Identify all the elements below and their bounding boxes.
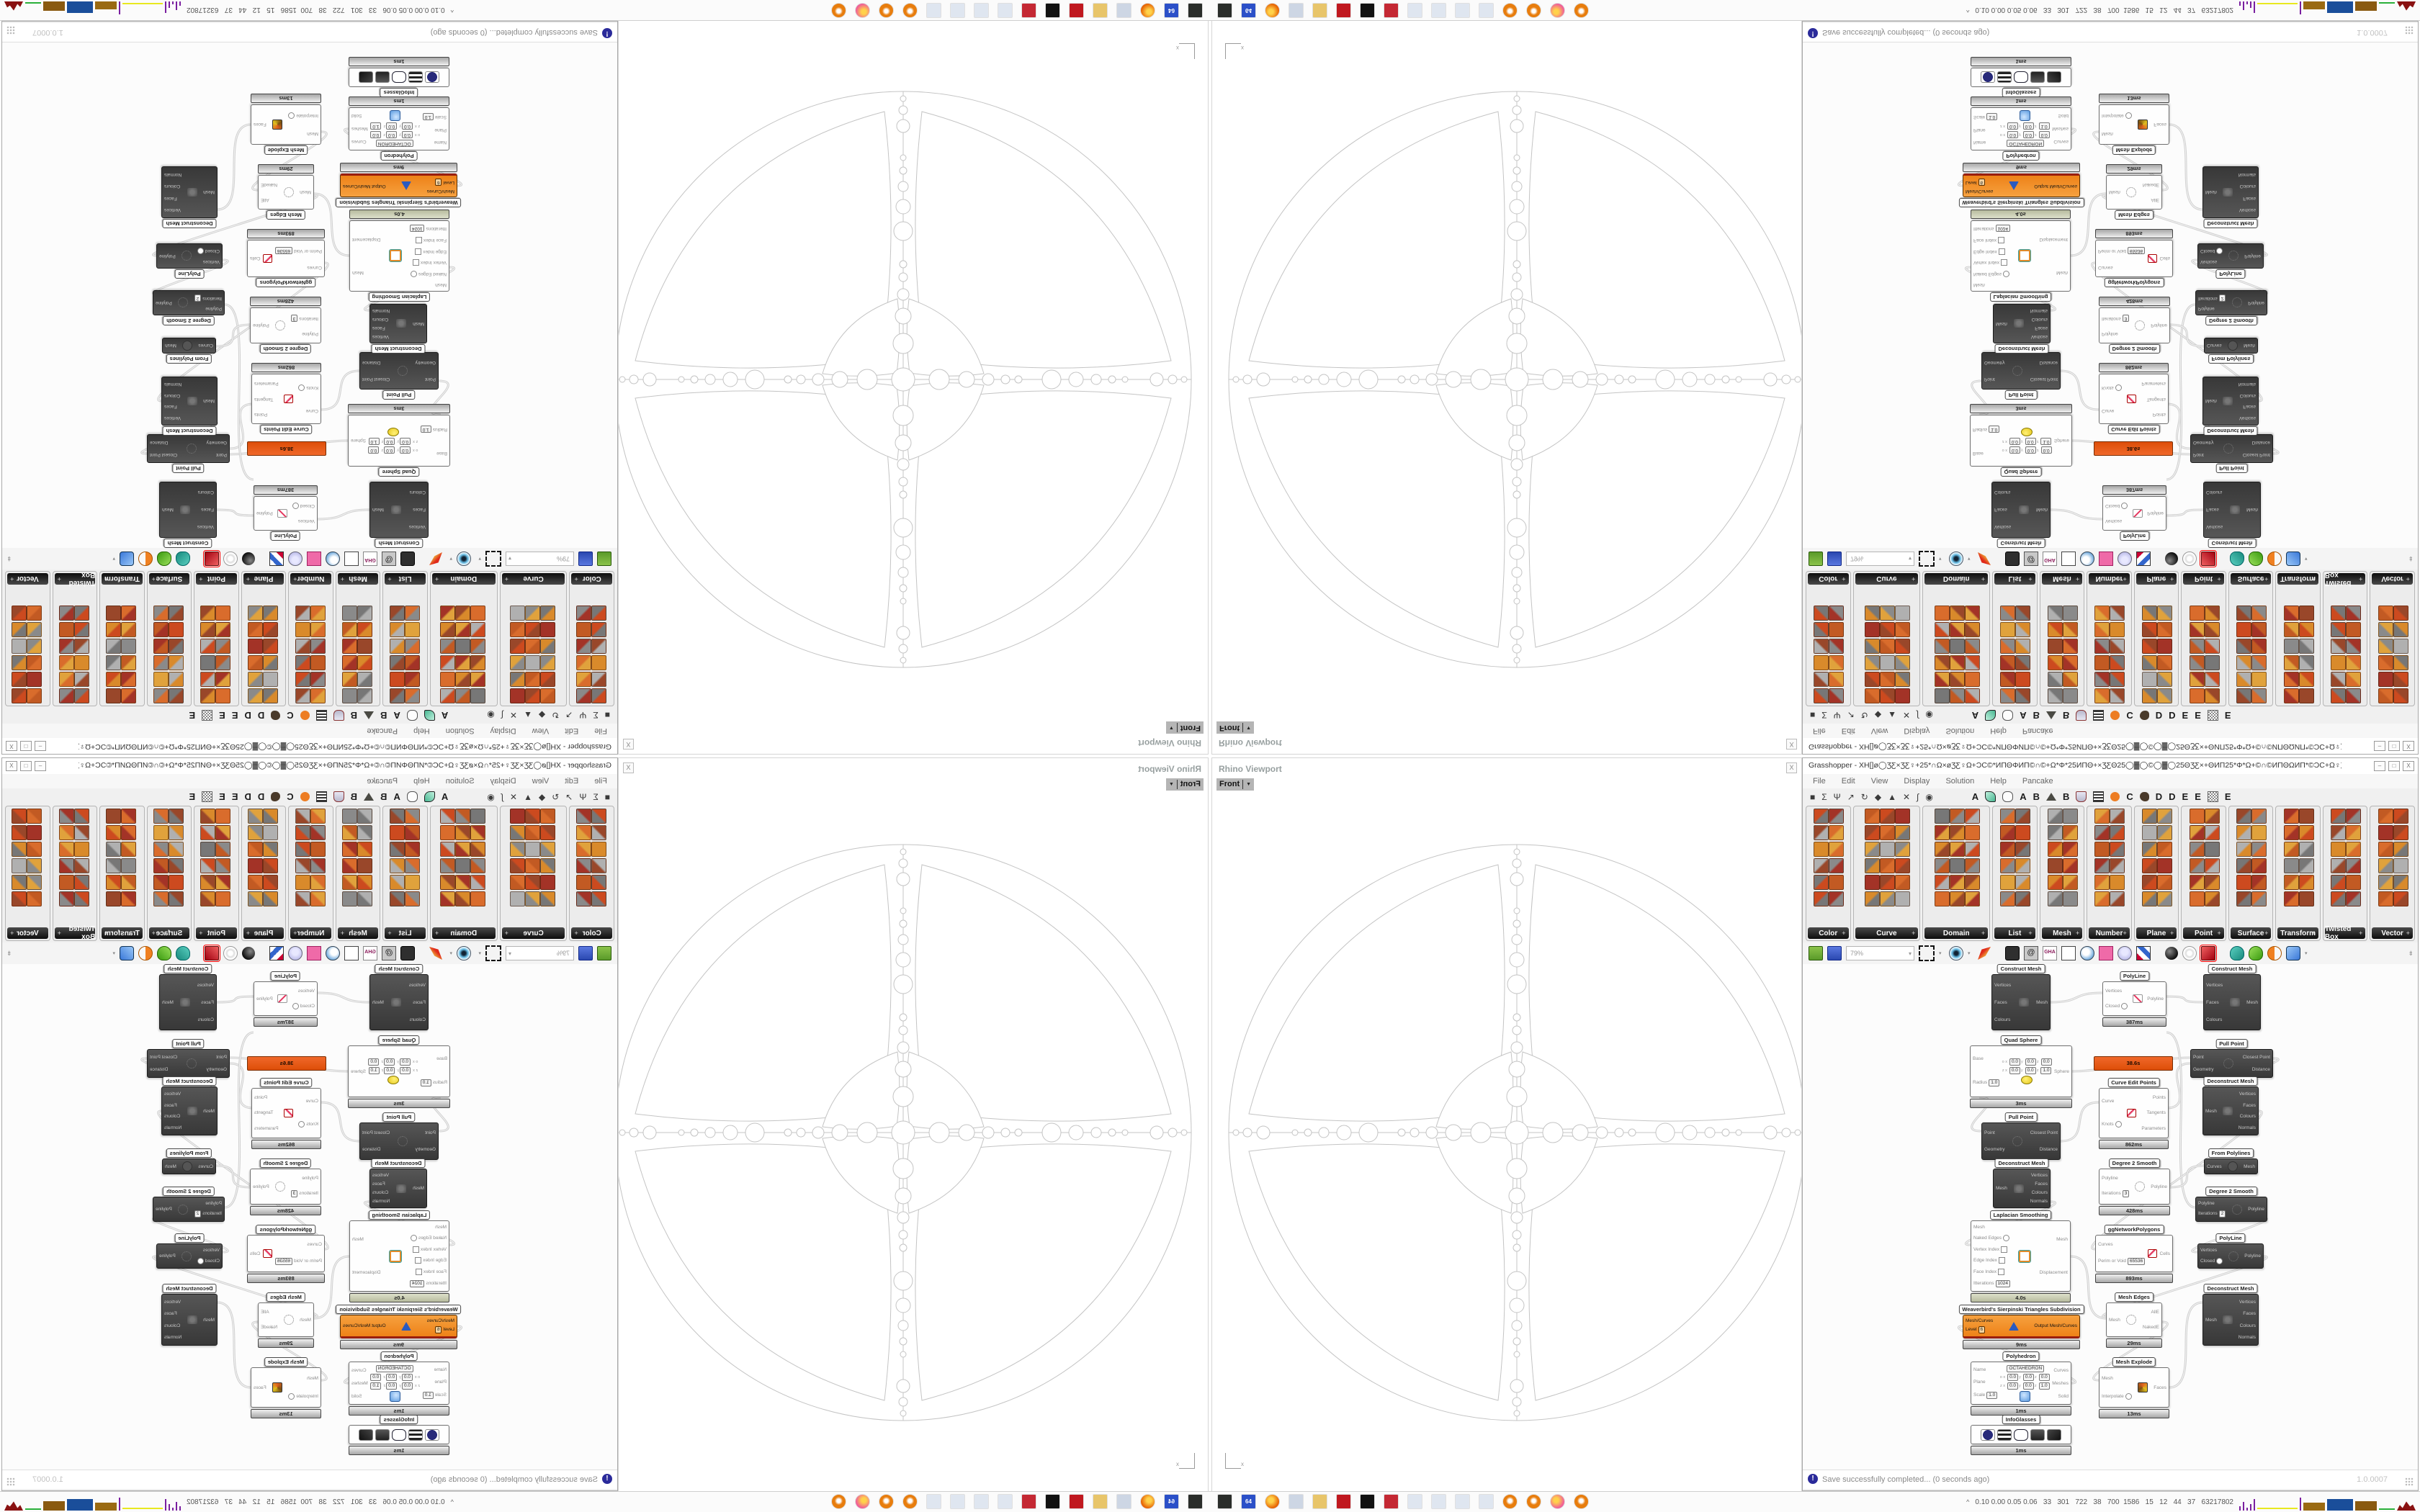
component-icon[interactable] (455, 858, 470, 873)
component-icon[interactable] (510, 622, 525, 637)
component-icon[interactable] (2048, 842, 2063, 857)
preview-eye-icon[interactable] (1949, 946, 1963, 960)
display-tab[interactable]: ◉ (1925, 792, 1932, 802)
component-icon[interactable] (121, 639, 136, 654)
component-icon[interactable] (2284, 655, 2299, 670)
component-icon[interactable] (263, 842, 278, 857)
component-icon[interactable] (357, 825, 372, 840)
palette-expand-plus[interactable]: + (387, 930, 391, 937)
component-icon[interactable] (2393, 639, 2408, 654)
component-icon[interactable] (153, 875, 169, 890)
component-icon[interactable] (295, 809, 310, 824)
display-tab[interactable]: ◉ (1925, 711, 1932, 721)
torus-white-icon[interactable] (2182, 552, 2197, 566)
port-level[interactable]: Level6 (1966, 1326, 1985, 1333)
brain-icon[interactable] (2002, 791, 2013, 802)
name-chip[interactable]: OCTAHEDRON (376, 1365, 413, 1372)
component-icon[interactable] (2378, 809, 2393, 824)
port-name[interactable]: Name (1973, 1367, 1986, 1372)
component-icon[interactable] (2205, 688, 2220, 703)
palette-expand-plus[interactable]: + (505, 575, 508, 582)
port-colours[interactable]: Colours (1994, 490, 2010, 495)
component-icon[interactable] (59, 842, 74, 857)
taskbar-floppy-64-icon[interactable]: 64 (1164, 1494, 1179, 1509)
component-icon[interactable] (390, 655, 405, 670)
palette-expand-plus[interactable]: + (104, 930, 108, 937)
quad-sphere[interactable]: BaseRadius1.0o x0.0y0.0z0.0z x0.0y0.0z1.… (1970, 415, 2072, 467)
port-closest-point[interactable]: Closest Point (150, 452, 177, 457)
plane-value-chip[interactable]: 0.0 (384, 438, 395, 445)
infoglasses-icon-1[interactable] (425, 1429, 439, 1441)
plugin-tab-B[interactable]: B (351, 710, 357, 721)
component-icon[interactable] (2094, 688, 2110, 703)
taskbar-paint-2-icon[interactable] (1431, 1494, 1446, 1509)
port-solid[interactable]: Solid (351, 1394, 362, 1399)
component-icon[interactable] (169, 875, 184, 890)
palette-expand-plus[interactable]: + (2028, 575, 2032, 582)
component-icon[interactable] (2157, 639, 2172, 654)
vector-tab[interactable]: ↗ (565, 792, 573, 802)
taskbar-calculator-icon[interactable] (1116, 1494, 1131, 1509)
port-polyline[interactable]: Polyline (256, 996, 273, 1002)
infoglasses-icon-4[interactable] (2030, 1429, 2045, 1441)
port-curves[interactable]: Curves (2053, 140, 2069, 145)
component-icon[interactable] (263, 639, 278, 654)
component-icon[interactable] (121, 825, 136, 840)
component-icon[interactable] (1814, 639, 1829, 654)
plane-value-chip[interactable]: 0.0 (2009, 1067, 2020, 1074)
component-icon[interactable] (263, 891, 278, 906)
ggnetworkpolygons[interactable]: CurvesPerim or Void65536Cells (247, 240, 325, 277)
component-icon[interactable] (295, 688, 310, 703)
value-chip[interactable]: 1024 (410, 225, 424, 232)
component-icon[interactable] (2063, 655, 2078, 670)
port-itterations[interactable]: Itterations1024 (1973, 225, 2010, 232)
port-normals[interactable]: Normals (372, 308, 390, 313)
polyline-1[interactable]: VerticesClosedPolyline (254, 981, 318, 1016)
palette-expand-plus[interactable]: + (387, 575, 391, 582)
component-icon[interactable] (2299, 655, 2314, 670)
gh-canvas[interactable]: Construct MeshVerticesFacesColoursMeshQu… (1803, 964, 2418, 1470)
port-faces[interactable]: Faces (164, 196, 177, 201)
plugin-tab-C[interactable]: C (2126, 710, 2133, 721)
component-icon[interactable] (74, 622, 89, 637)
component-icon[interactable] (470, 606, 485, 621)
port-mesh[interactable]: Mesh (203, 190, 215, 195)
plane-value-chip[interactable]: 0.0 (2039, 1374, 2050, 1381)
menu-item-view[interactable]: View (532, 777, 550, 786)
component-icon[interactable] (2236, 622, 2251, 637)
jug-green-icon[interactable] (2249, 552, 2263, 566)
port-mesh[interactable]: Mesh (2102, 1376, 2113, 1381)
palette-expand-plus[interactable]: + (10, 930, 14, 937)
component-icon[interactable] (74, 891, 89, 906)
component-icon[interactable] (357, 622, 372, 637)
component-icon[interactable] (169, 825, 184, 840)
export-doc-icon[interactable] (2061, 946, 2076, 960)
plugin-tab-E[interactable]: E (232, 710, 238, 721)
taskbar-obs-app-icon[interactable] (1217, 3, 1232, 18)
component-icon[interactable] (1895, 639, 1910, 654)
taskbar-blender-3-icon[interactable] (1574, 1494, 1589, 1509)
component-icon[interactable] (59, 622, 74, 637)
palette-expand-plus[interactable]: + (2264, 930, 2268, 937)
component-icon[interactable] (591, 655, 606, 670)
palette-expand-plus[interactable]: + (58, 930, 61, 937)
port-perim-or-void[interactable]: Perim or Void65536 (2098, 1258, 2145, 1265)
gem-blue-icon[interactable] (120, 946, 134, 960)
params-tab[interactable]: ■ (1810, 711, 1815, 721)
quad-sphere[interactable]: BaseRadius1.0o x0.0y0.0z0.0z x0.0y0.0z1.… (348, 415, 450, 467)
component-icon[interactable] (440, 842, 455, 857)
mountain-icon[interactable] (364, 711, 374, 719)
component-icon[interactable] (2094, 875, 2110, 890)
value-chip[interactable]: 1.0 (421, 426, 431, 433)
component-icon[interactable] (2251, 809, 2267, 824)
port-vertices[interactable]: Vertices (203, 1248, 220, 1253)
degree-2-smooth-1[interactable]: PolylineIterations3Polyline (250, 1169, 321, 1205)
chevron-down-icon[interactable]: ▾ (109, 950, 115, 956)
menu-item-view[interactable]: View (1871, 726, 1888, 735)
component-icon[interactable] (2063, 875, 2078, 890)
component-icon[interactable] (106, 606, 121, 621)
port-faces[interactable]: Faces (413, 1000, 426, 1005)
component-icon[interactable] (263, 655, 278, 670)
port-mesh[interactable]: Mesh (1973, 1225, 1985, 1230)
component-icon[interactable] (1865, 858, 1880, 873)
component-icon[interactable] (59, 688, 74, 703)
construct-mesh-2[interactable]: VerticesFacesColoursMesh (2203, 482, 2261, 538)
port-curves[interactable]: Curves (2207, 343, 2222, 348)
component-icon[interactable] (1814, 622, 1829, 637)
component-icon[interactable] (2331, 858, 2346, 873)
palette-expand-plus[interactable]: + (505, 930, 508, 937)
component-icon[interactable] (591, 858, 606, 873)
infoglasses-icon-5[interactable] (2047, 1429, 2061, 1441)
component-icon[interactable] (2063, 639, 2078, 654)
taskbar-paint-4-icon[interactable] (1479, 1494, 1494, 1509)
port-colours[interactable]: Colours (410, 490, 426, 495)
port-vertices[interactable]: Vertices (298, 989, 315, 994)
component-icon[interactable] (2190, 875, 2205, 890)
port-normals[interactable]: Normals (2238, 382, 2256, 387)
sphere-dark-icon[interactable] (2165, 947, 2178, 960)
port-polyline[interactable]: Polyline (2151, 323, 2167, 328)
component-icon[interactable] (1965, 809, 1980, 824)
component-icon[interactable] (2331, 606, 2346, 621)
component-icon[interactable] (342, 672, 357, 687)
port-output-mesh-curves[interactable]: Output Mesh/Curves (2034, 1323, 2077, 1328)
port-vertices[interactable]: Vertices (372, 334, 389, 339)
maths-tab[interactable]: Σ (1821, 711, 1827, 721)
toolbar-overflow-icon[interactable]: ⇟ (6, 555, 12, 563)
component-icon[interactable] (2094, 891, 2110, 906)
pull-point-1[interactable]: PointGeometryClosest PointDistance (359, 1122, 439, 1160)
polyline-2[interactable]: VerticesClosedPolyline (156, 243, 223, 269)
close-button[interactable]: X (6, 761, 17, 771)
port-vertices[interactable]: Vertices (1994, 525, 2011, 530)
port-iterations[interactable]: Iterations3 (291, 1190, 318, 1197)
value-chip[interactable]: 65536 (275, 247, 292, 254)
toggle-box[interactable] (1998, 1269, 2004, 1275)
palette-expand-plus[interactable]: + (435, 575, 439, 582)
port-naked-edges[interactable]: Naked Edges (1973, 271, 2009, 277)
component-icon[interactable] (310, 842, 326, 857)
mesh-edges-1[interactable]: MeshAllENakedE (2106, 175, 2162, 210)
infoglasses[interactable] (1971, 68, 2071, 87)
component-icon[interactable] (74, 809, 89, 824)
minimize-button[interactable]: – (35, 741, 46, 751)
value-chip[interactable]: 3 (291, 315, 298, 322)
viewport-close-button[interactable]: X (623, 762, 634, 773)
taskbar-obs-app-icon[interactable] (1188, 3, 1203, 18)
component-icon[interactable] (2346, 825, 2361, 840)
toggle-circle[interactable] (411, 271, 417, 277)
menu-item-file[interactable]: File (594, 726, 607, 735)
display-tab[interactable]: ◉ (487, 711, 494, 721)
palette-expand-plus[interactable]: + (152, 575, 156, 582)
port-perim-or-void[interactable]: Perim or Void65536 (275, 1258, 322, 1265)
taskbar-firefox-icon[interactable] (1140, 1494, 1155, 1509)
port-points[interactable]: Points (2153, 1095, 2166, 1100)
port-polyline[interactable]: Polyline (2244, 1254, 2261, 1259)
palette-expand-plus[interactable]: + (2312, 930, 2316, 937)
component-icon[interactable] (248, 842, 263, 857)
port-sphere[interactable]: Sphere (351, 438, 366, 444)
component-icon[interactable] (2236, 639, 2251, 654)
component-icon[interactable] (1865, 875, 1880, 890)
palette-expand-plus[interactable]: + (341, 575, 344, 582)
component-icon[interactable] (440, 858, 455, 873)
toggle-box[interactable] (413, 1246, 419, 1253)
value-chip[interactable]: 6 (1978, 179, 1986, 186)
component-icon[interactable] (215, 858, 230, 873)
deconstruct-mesh-3[interactable]: MeshVerticesFacesColoursNormals (2202, 166, 2259, 218)
component-icon[interactable] (1935, 672, 1950, 687)
value-chip[interactable]: 3 (291, 1190, 298, 1197)
port-nakede[interactable]: NakedE (2143, 182, 2159, 187)
component-icon[interactable] (2331, 655, 2346, 670)
component-icon[interactable] (1935, 688, 1950, 703)
component-icon[interactable] (2157, 622, 2172, 637)
remote-at-icon[interactable]: @ (382, 946, 396, 960)
save-file-icon[interactable] (1827, 552, 1842, 566)
component-icon[interactable] (2063, 825, 2078, 840)
component-icon[interactable] (215, 622, 230, 637)
component-icon[interactable] (2063, 809, 2078, 824)
component-icon[interactable] (1814, 858, 1829, 873)
port-knots[interactable]: Knots (298, 384, 318, 391)
port-scale[interactable]: Scale1.0 (423, 113, 447, 120)
component-icon[interactable] (153, 858, 169, 873)
component-icon[interactable] (248, 809, 263, 824)
pull-point-1[interactable]: PointGeometryClosest PointDistance (1981, 1122, 2061, 1160)
component-icon[interactable] (1965, 622, 1980, 637)
component-icon[interactable] (2015, 639, 2030, 654)
preview-eye-icon[interactable] (457, 946, 471, 960)
port-mesh[interactable]: Mesh (435, 1225, 447, 1230)
plugin-tab-C[interactable]: C (2126, 791, 2133, 802)
plugin-tab-E[interactable]: E (2195, 791, 2201, 802)
component-icon[interactable] (1865, 891, 1880, 906)
component-icon[interactable] (2346, 606, 2361, 621)
dot-orange-icon[interactable] (2110, 711, 2120, 720)
port-closest-point[interactable]: Closest Point (362, 1130, 390, 1135)
port-edge-index[interactable]: Edge Index (415, 248, 447, 255)
component-icon[interactable] (2190, 688, 2205, 703)
plugin-tab-A[interactable]: A (2020, 710, 2026, 721)
tray-expand-chevron[interactable]: ^ (1966, 6, 1969, 14)
component-icon[interactable] (248, 891, 263, 906)
component-icon[interactable] (455, 842, 470, 857)
component-icon[interactable] (510, 842, 525, 857)
component-icon[interactable] (310, 622, 326, 637)
component-icon[interactable] (510, 891, 525, 906)
port-colours[interactable]: Colours (2240, 393, 2256, 398)
port-tangents[interactable]: Tangents (254, 1110, 273, 1115)
component-icon[interactable] (12, 606, 27, 621)
taskbar-blender-2-icon[interactable] (1526, 3, 1541, 18)
plane-value-chip[interactable]: 0.0 (368, 446, 379, 454)
component-icon[interactable] (1865, 622, 1880, 637)
port-mesh[interactable]: Mesh (2056, 1237, 2068, 1242)
menu-item-view[interactable]: View (1871, 777, 1888, 786)
component-icon[interactable] (525, 622, 540, 637)
port-iterations[interactable]: Iterations3 (2102, 315, 2129, 322)
component-icon[interactable] (263, 825, 278, 840)
component-icon[interactable] (2094, 639, 2110, 654)
toggle-box[interactable] (413, 259, 419, 266)
plugin-tab-D[interactable]: D (2156, 791, 2162, 802)
component-icon[interactable] (248, 672, 263, 687)
component-icon[interactable] (27, 809, 42, 824)
component-icon[interactable] (2000, 825, 2015, 840)
component-icon[interactable] (1880, 655, 1895, 670)
component-icon[interactable] (2142, 825, 2157, 840)
port-parameters[interactable]: Parameters (2141, 381, 2166, 386)
help-package-icon[interactable] (307, 946, 321, 960)
port-distance[interactable]: Distance (362, 360, 380, 365)
component-icon[interactable] (1950, 655, 1965, 670)
port-faces[interactable]: Faces (254, 1385, 266, 1390)
component-icon[interactable] (27, 672, 42, 687)
component-icon[interactable] (2142, 672, 2157, 687)
component-icon[interactable] (2000, 672, 2015, 687)
port-plane[interactable]: Plane (434, 127, 447, 132)
component-icon[interactable] (2048, 875, 2063, 890)
polyhedron[interactable]: NamePlaneScale1.0OCTAHEDRONo x0.0y0.0z0.… (1971, 107, 2071, 150)
toggle-circle[interactable] (2125, 1393, 2132, 1400)
port-mesh-curves[interactable]: Mesh/Curves (427, 1318, 454, 1323)
port-polyline[interactable]: Polyline (253, 1184, 269, 1189)
maximize-button[interactable]: □ (2388, 761, 2400, 771)
component-icon[interactable] (2393, 875, 2408, 890)
viewport-view-tab[interactable]: Front▼ (1216, 721, 1254, 734)
infoglasses-icon-3[interactable] (392, 1429, 406, 1441)
port-interpolate[interactable]: Interpolate (2102, 1393, 2132, 1400)
component-icon[interactable] (510, 672, 525, 687)
component-icon[interactable] (153, 891, 169, 906)
component-icon[interactable] (2015, 809, 2030, 824)
palette-expand-plus[interactable]: + (2406, 930, 2410, 937)
mountain-icon[interactable] (2046, 711, 2056, 719)
pull-point-1[interactable]: PointGeometryClosest PointDistance (359, 352, 439, 390)
port-curves[interactable]: Curves (2098, 265, 2113, 270)
taskbar-cola-can-icon[interactable] (1069, 1494, 1084, 1509)
taskbar-red-card-icon[interactable] (1021, 1494, 1036, 1509)
port-tangents[interactable]: Tangents (2147, 1110, 2166, 1115)
value-chip[interactable]: 65536 (2128, 247, 2145, 254)
component-icon[interactable] (2251, 875, 2267, 890)
component-icon[interactable] (390, 809, 405, 824)
component-icon[interactable] (510, 825, 525, 840)
component-icon[interactable] (1935, 875, 1950, 890)
port-point[interactable]: Point (2193, 1055, 2204, 1060)
port-meshes[interactable]: Meshes (2052, 1381, 2069, 1386)
component-icon[interactable] (405, 842, 420, 857)
plane-value-chip[interactable]: 0.0 (2041, 1058, 2052, 1066)
sets-tab[interactable]: Ψ (1834, 792, 1841, 802)
value-chip[interactable]: 1.0 (423, 113, 434, 120)
port-normals[interactable]: Normals (164, 1335, 181, 1340)
component-icon[interactable] (1880, 622, 1895, 637)
component-icon[interactable] (153, 639, 169, 654)
component-icon[interactable] (2299, 891, 2314, 906)
deconstruct-mesh-1[interactable]: MeshVerticesFacesColoursNormals (161, 1086, 218, 1135)
ball-orange-icon[interactable] (138, 946, 153, 960)
component-icon[interactable] (2000, 875, 2015, 890)
component-icon[interactable] (440, 891, 455, 906)
component-icon[interactable] (215, 688, 230, 703)
taskbar-blender-1-icon[interactable] (902, 1494, 918, 1509)
component-icon[interactable] (153, 622, 169, 637)
params-tab[interactable]: ■ (1810, 792, 1815, 802)
minimize-button[interactable]: – (2374, 741, 2385, 751)
component-icon[interactable] (153, 606, 169, 621)
port-colours[interactable]: Colours (372, 1190, 388, 1195)
component-icon[interactable] (2393, 688, 2408, 703)
toggle-box[interactable] (415, 1257, 421, 1264)
taskbar-paint-4-icon[interactable] (926, 1494, 941, 1509)
component-icon[interactable] (540, 842, 555, 857)
component-icon[interactable] (153, 655, 169, 670)
jug-teal-icon[interactable] (2230, 946, 2244, 960)
component-icon[interactable] (2142, 655, 2157, 670)
port-vertices[interactable]: Vertices (2105, 989, 2122, 994)
viewport-close-button[interactable]: X (1786, 762, 1797, 773)
gem-blue-icon[interactable] (2286, 552, 2300, 566)
taskbar-firefox-2-icon[interactable] (855, 1494, 870, 1509)
construct-mesh-1[interactable]: VerticesFacesColoursMesh (1991, 482, 2051, 538)
toggle-circle[interactable] (2216, 1258, 2223, 1264)
value-chip[interactable]: 1.0 (423, 1392, 434, 1399)
value-chip[interactable]: 3 (2123, 1190, 2130, 1197)
toggle-box[interactable] (2001, 259, 2007, 266)
palette-expand-plus[interactable]: + (2170, 930, 2174, 937)
component-icon[interactable] (2236, 858, 2251, 873)
component-icon[interactable] (1829, 891, 1844, 906)
component-icon[interactable] (1880, 639, 1895, 654)
port-vertices[interactable]: Vertices (164, 207, 181, 212)
component-icon[interactable] (1880, 842, 1895, 857)
component-icon[interactable] (74, 655, 89, 670)
curve-tab[interactable]: ↻ (1861, 792, 1868, 802)
menu-item-pancake[interactable]: Pancake (2022, 777, 2053, 786)
port-points[interactable]: Points (2153, 412, 2166, 417)
component-icon[interactable] (2015, 891, 2030, 906)
component-icon[interactable] (12, 672, 27, 687)
component-icon[interactable] (2063, 688, 2078, 703)
